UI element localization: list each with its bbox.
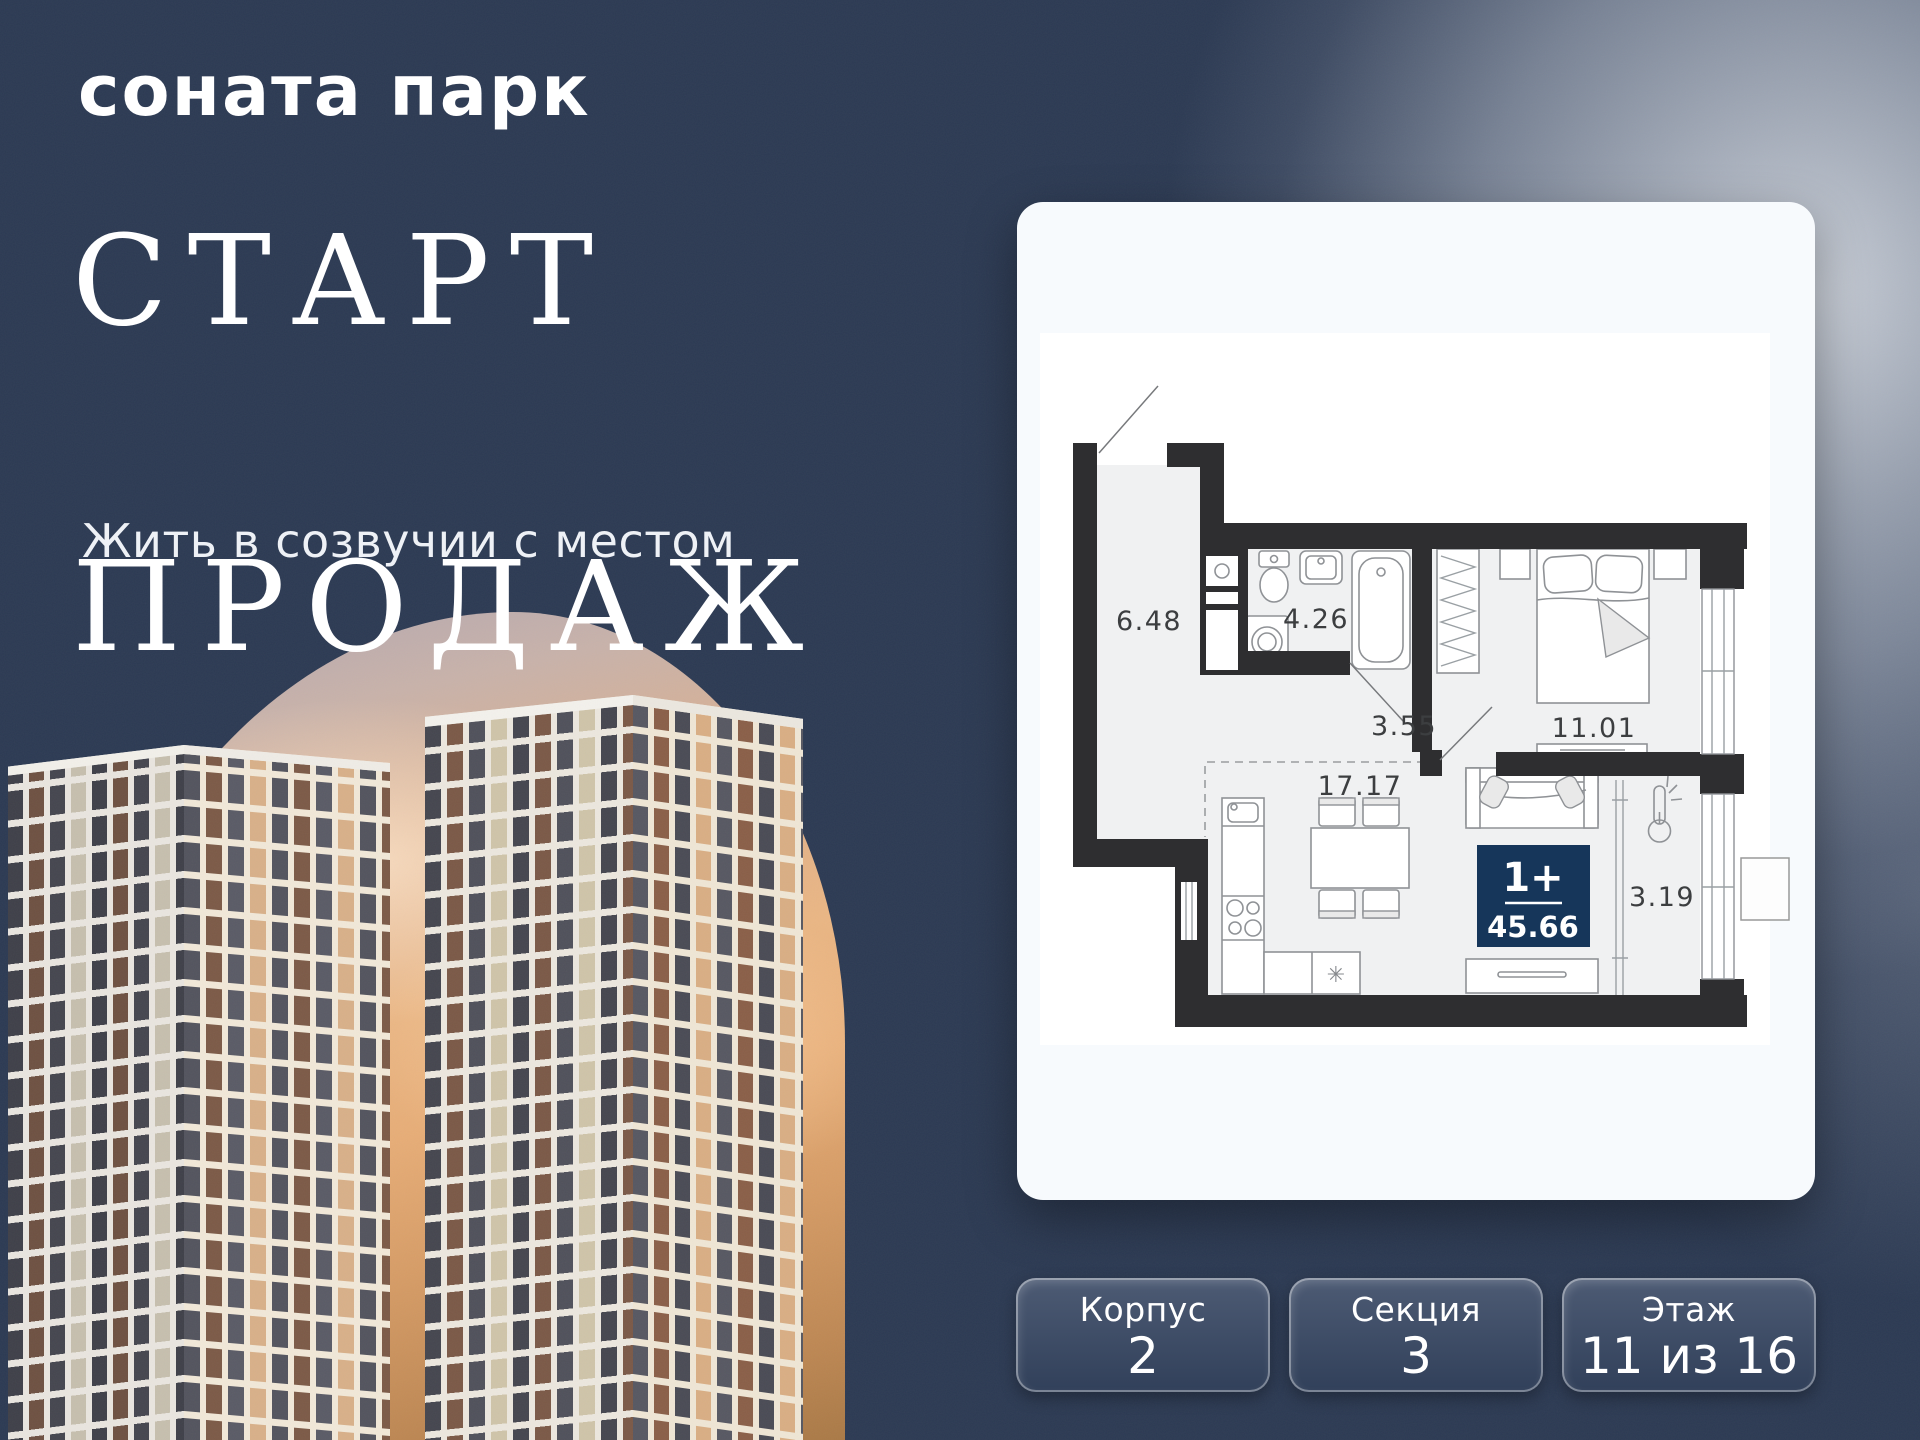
detail-label: Этаж — [1562, 1290, 1816, 1329]
detail-value: 2 — [1016, 1331, 1270, 1381]
floorplan-card: ✳ — [1017, 202, 1815, 1200]
room-area-bedroom: 11.01 — [1552, 713, 1637, 744]
detail-label: Корпус — [1016, 1290, 1270, 1329]
room-area-balcony: 3.19 — [1629, 882, 1695, 913]
building-right — [425, 695, 803, 1440]
detail-box-sektsiya: Секция 3 — [1289, 1278, 1543, 1392]
area-badge: 1+ 45.66 — [1477, 845, 1590, 947]
detail-box-etazh: Этаж 11 из 16 — [1562, 1278, 1816, 1392]
hero-title-line1: СТАРТ — [72, 209, 613, 354]
badge-layout: 1+ — [1502, 855, 1563, 901]
poster-stage: соната парк СТАРТ ПРОДАЖ Жить в созвучии… — [0, 0, 1920, 1440]
room-area-hallway: 6.48 — [1116, 606, 1182, 637]
detail-value: 3 — [1289, 1331, 1543, 1381]
fridge-icon: ✳ — [1327, 963, 1345, 988]
hero-subtitle: Жить в созвучии с местом — [82, 514, 735, 568]
details-row: Корпус 2 Секция 3 Этаж 11 из 16 — [1016, 1278, 1822, 1392]
badge-total-area: 45.66 — [1487, 910, 1579, 944]
floorplan-svg: ✳ — [1017, 202, 1815, 1200]
hero-title: СТАРТ ПРОДАЖ — [72, 200, 824, 689]
building-left — [8, 745, 390, 1440]
building-left-face — [8, 745, 184, 1440]
room-area-corridor: 3.55 — [1371, 711, 1437, 742]
building-right-face — [425, 695, 633, 1440]
balcony-exterior-unit — [1741, 858, 1789, 920]
detail-value: 11 из 16 — [1562, 1331, 1816, 1381]
room-area-kitchen-living: 17.17 — [1318, 771, 1403, 802]
building-right-face-side — [633, 695, 803, 1440]
detail-box-korpus: Корпус 2 — [1016, 1278, 1270, 1392]
room-area-bathroom: 4.26 — [1283, 604, 1349, 635]
brand-logo: соната парк — [78, 50, 591, 132]
building-left-face-sunlit — [184, 745, 390, 1440]
detail-label: Секция — [1289, 1290, 1543, 1329]
